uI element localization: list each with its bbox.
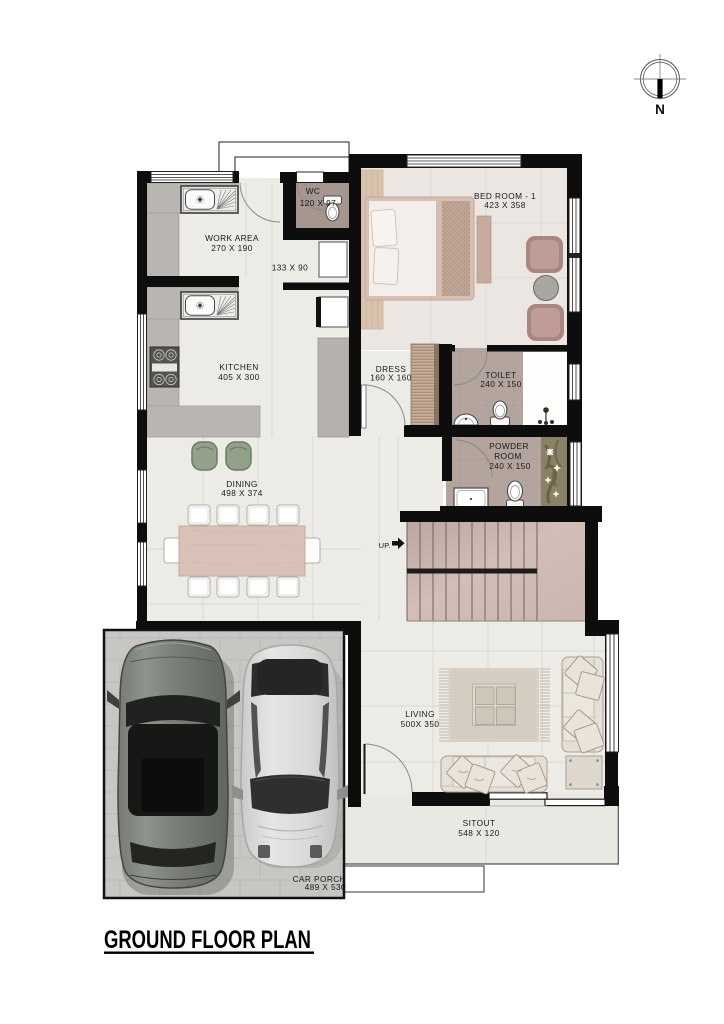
svg-text:120 X 97: 120 X 97 <box>300 198 336 208</box>
svg-text:LIVING: LIVING <box>405 709 435 719</box>
svg-text:405 X 300: 405 X 300 <box>218 372 259 382</box>
svg-text:WORK AREA: WORK AREA <box>205 233 259 243</box>
svg-text:270 X 190: 270 X 190 <box>211 243 252 253</box>
svg-text:ROOM: ROOM <box>494 451 521 461</box>
svg-text:160 X 160: 160 X 160 <box>370 373 411 383</box>
svg-text:498 X 374: 498 X 374 <box>221 488 262 498</box>
svg-text:POWDER: POWDER <box>489 441 529 451</box>
svg-text:N: N <box>655 102 665 117</box>
svg-text:489 X 530: 489 X 530 <box>305 882 346 892</box>
svg-text:548 X 120: 548 X 120 <box>458 828 499 838</box>
svg-text:GROUND FLOOR PLAN: GROUND FLOOR PLAN <box>104 926 311 954</box>
svg-text:WC: WC <box>306 186 321 196</box>
svg-text:240 X 150: 240 X 150 <box>480 379 521 389</box>
svg-text:UP.: UP. <box>379 541 391 550</box>
svg-text:SITOUT: SITOUT <box>463 818 496 828</box>
svg-text:500X 350: 500X 350 <box>401 719 440 729</box>
svg-text:423 X 358: 423 X 358 <box>484 200 525 210</box>
svg-text:133 X 90: 133 X 90 <box>272 263 308 273</box>
svg-text:KITCHEN: KITCHEN <box>219 362 258 372</box>
svg-text:240 X 150: 240 X 150 <box>489 461 530 471</box>
